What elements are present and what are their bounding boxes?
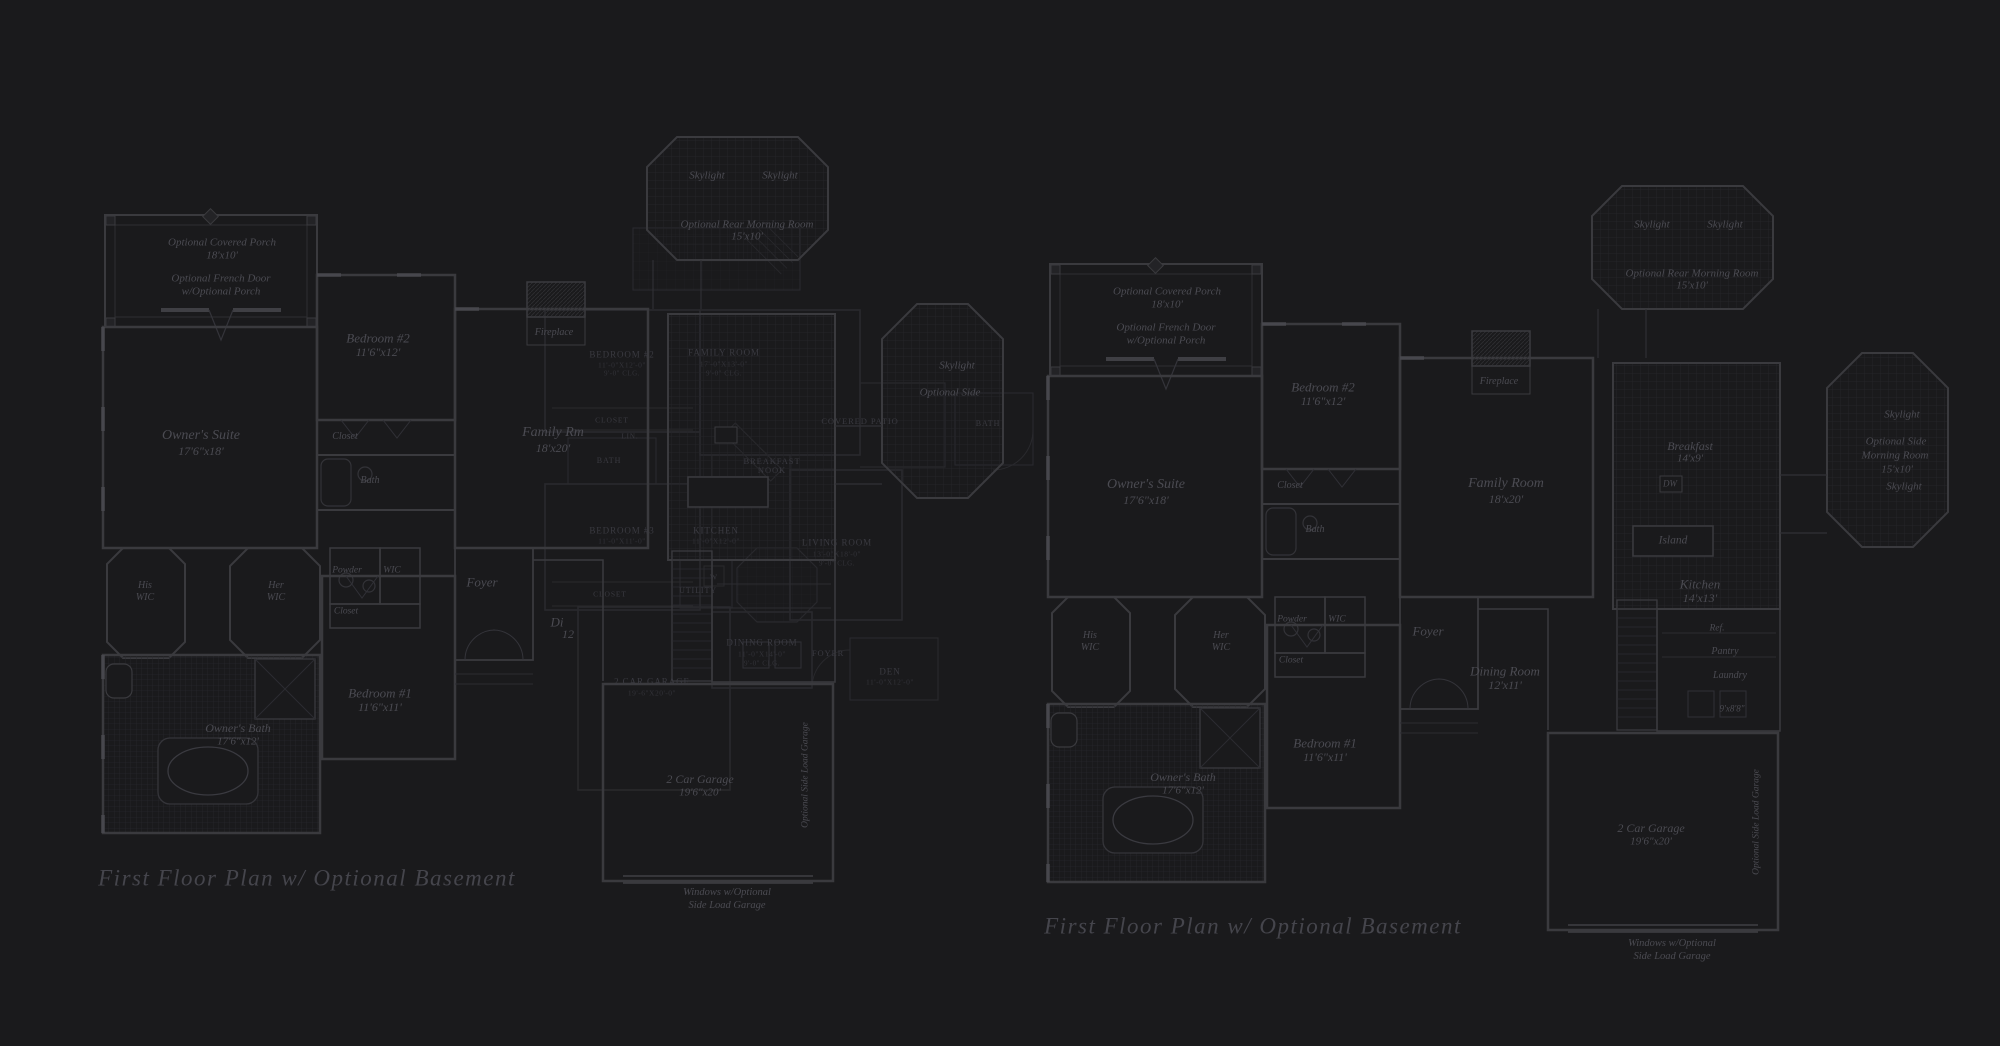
- right-owners-suite-label: Owner's Suite: [1107, 478, 1185, 492]
- left-closet-hall-label: Closet: [334, 607, 358, 617]
- right-owners-suite-dim: 17'6"x18': [1123, 494, 1169, 506]
- left-her-wic-label: Her: [268, 581, 284, 591]
- right-bedroom2-dim: 11'6"x12': [1301, 395, 1346, 407]
- overlay-closet-label: CLOSET: [595, 416, 629, 424]
- overlay-bedroom3-label: BEDROOM #3: [589, 527, 654, 536]
- overlay-garage-label: 2 CAR GARAGE: [614, 678, 690, 687]
- right-rear-morning-room-dim: 15'x10': [1676, 281, 1708, 292]
- right-her-wic-label-2: WIC: [1212, 643, 1230, 653]
- right-laundry-label: Laundry: [1713, 671, 1747, 681]
- right-skylight-b-label: Skylight: [1707, 220, 1742, 231]
- right-rear-morning-room-label: Optional Rear Morning Room: [1626, 269, 1759, 280]
- left-closet-bedroom2-label: Closet: [332, 432, 358, 442]
- overlay-bedroom3-dim: 11'-0"X11'-0": [598, 537, 646, 545]
- right-bedroom1-dim: 11'6"x11': [1303, 751, 1347, 763]
- right-side-morning-room-label-2: Morning Room: [1862, 451, 1929, 462]
- left-bedroom2-label: Bedroom #2: [346, 332, 409, 345]
- left-fireplace-label: Fireplace: [535, 328, 574, 338]
- overlay-closet2-label: CLOSET: [593, 590, 627, 598]
- right-french-door-label-2: w/Optional Porch: [1127, 336, 1206, 347]
- right-dining-dim: 12'x11': [1488, 679, 1522, 691]
- right-island-label: Island: [1659, 535, 1688, 547]
- right-closet-hall-label: Closet: [1279, 656, 1303, 666]
- overlay-dining-room-clg: 9'-0" CLG.: [744, 661, 780, 668]
- overlay-bath-label: BATH: [597, 457, 622, 465]
- overlay-washer-label: W: [710, 573, 718, 581]
- left-garage-label: 2 Car Garage: [666, 773, 733, 785]
- floor-plan-document: First Floor Plan w/ Optional Basement Fi…: [0, 0, 2000, 1046]
- overlay-den-dim: 11'-0"X12'-0": [866, 678, 914, 686]
- left-owners-bath-dim: 17'6"x12': [217, 737, 259, 748]
- left-skylight-b-label: Skylight: [762, 171, 797, 182]
- right-side-morning-room-label: Optional Side: [1866, 437, 1927, 448]
- left-owners-bath-label: Owner's Bath: [205, 722, 271, 734]
- left-french-door-label-2: w/Optional Porch: [182, 287, 261, 298]
- right-dining-label: Dining Room: [1470, 665, 1540, 678]
- left-owners-suite-dim: 17'6"x18': [178, 445, 224, 457]
- left-foyer-label: Foyer: [466, 576, 497, 589]
- right-side-morning-room-dim: 15'x10': [1881, 465, 1913, 476]
- overlay-linen-label: LIN.: [621, 434, 638, 441]
- left-dining-dim-partial: 12: [562, 628, 574, 640]
- left-rear-morning-room-dim: 15'x10': [731, 232, 763, 243]
- left-french-door-label: Optional French Door: [171, 274, 270, 285]
- right-french-door-label: Optional French Door: [1116, 323, 1215, 334]
- right-closet-bedroom2-label: Closet: [1277, 481, 1303, 491]
- left-rear-morning-room-label: Optional Rear Morning Room: [681, 220, 814, 231]
- right-side-skylight-label: Skylight: [1884, 410, 1919, 421]
- overlay-covered-patio-label: COVERED PATIO: [821, 417, 898, 426]
- overlay-utility-label: UTILITY: [679, 587, 717, 595]
- overlay-foyer-label: FOYER: [812, 649, 844, 658]
- left-bedroom1-dim: 11'6"x11': [358, 701, 402, 713]
- right-porch-dim: 18'x10': [1151, 300, 1183, 311]
- left-side-load-garage-label: Optional Side Load Garage: [801, 722, 811, 828]
- overlay-living-room-label: LIVING ROOM: [802, 539, 872, 548]
- left-side-skylight-label: Skylight: [939, 361, 974, 372]
- overlay-dining-room-label: DINING ROOM: [726, 639, 797, 648]
- left-garage-dim: 19'6"x20': [679, 788, 721, 799]
- right-garage-dim: 19'6"x20': [1630, 837, 1672, 848]
- left-wic-label: WIC: [383, 566, 400, 576]
- right-his-wic-label-2: WIC: [1081, 643, 1099, 653]
- left-windows-note-label: Windows w/Optional: [683, 888, 771, 899]
- right-dw-label: DW: [1663, 480, 1677, 489]
- overlay-garage-dim: 19'-6"X20'-0": [628, 689, 676, 697]
- overlay-bedroom2-dim: 11'-0"X12'-0": [598, 361, 646, 369]
- right-his-wic-label: His: [1083, 631, 1097, 641]
- right-breakfast-label: Breakfast: [1667, 440, 1713, 452]
- right-pantry-label: Pantry: [1711, 647, 1738, 657]
- overlay-kitchen-dim: 11'-0"X12'-0": [692, 537, 740, 545]
- left-side-morning-room-label: Optional Side: [920, 388, 981, 399]
- right-family-room-label: Family Room: [1468, 477, 1544, 491]
- right-side-skylight-b-label: Skylight: [1886, 482, 1921, 493]
- left-porch-label: Optional Covered Porch: [168, 238, 276, 249]
- overlay-bedroom2-clg: 9'-0" CLG.: [604, 371, 640, 378]
- right-family-room-dim: 18'x20': [1489, 493, 1523, 505]
- overlay-family-room-dim: 17'-0"X13'-0": [700, 360, 748, 368]
- right-owners-bath-label: Owner's Bath: [1150, 771, 1216, 783]
- right-wic-label: WIC: [1328, 615, 1345, 625]
- right-powder-label: Powder: [1277, 615, 1307, 625]
- left-her-wic-label-2: WIC: [267, 593, 285, 603]
- overlay-bedroom2-label: BEDROOM #2: [589, 351, 654, 360]
- right-owners-bath-dim: 17'6"x12': [1162, 786, 1204, 797]
- overlay-living-room-clg: 9'-0" CLG.: [819, 561, 855, 568]
- overlay-kitchen-label: KITCHEN: [693, 527, 739, 536]
- right-foyer-label: Foyer: [1412, 625, 1443, 638]
- right-fireplace-label: Fireplace: [1480, 377, 1519, 387]
- right-her-wic-label: Her: [1213, 631, 1229, 641]
- overlay-den-label: DEN: [879, 668, 900, 677]
- right-breakfast-dim: 14'x9': [1677, 454, 1703, 465]
- right-kitchen-label: Kitchen: [1680, 578, 1720, 591]
- left-his-wic-label: His: [138, 581, 152, 591]
- left-family-room-dim: 18'x20': [536, 442, 570, 454]
- right-side-load-garage-label: Optional Side Load Garage: [1752, 769, 1762, 875]
- left-plan-title: First Floor Plan w/ Optional Basement: [98, 867, 516, 890]
- right-laundry-dim: 9'x8'8": [1719, 705, 1744, 714]
- left-bedroom2-dim: 11'6"x12': [356, 346, 401, 358]
- right-windows-note-label-2: Side Load Garage: [1634, 952, 1711, 963]
- overlay-family-room-label: FAMILY ROOM: [688, 349, 760, 358]
- overlay-family-room-clg: 9'-0" CLG.: [706, 371, 742, 378]
- right-plan-title: First Floor Plan w/ Optional Basement: [1044, 915, 1462, 938]
- left-powder-label: Powder: [332, 566, 362, 576]
- right-bath-label: Bath: [1306, 525, 1325, 535]
- left-bath-label: Bath: [361, 476, 380, 486]
- right-kitchen-dim: 14'x13': [1683, 592, 1717, 604]
- left-bedroom1-label: Bedroom #1: [348, 687, 411, 700]
- overlay-living-room-dim: 13'-0"X18'-0": [813, 550, 861, 558]
- overlay-bath2-label: BATH: [976, 420, 1001, 428]
- left-family-room-label: Family Rm: [522, 426, 584, 440]
- left-porch-dim: 18'x10': [206, 251, 238, 262]
- left-skylight-a-label: Skylight: [689, 171, 724, 182]
- right-windows-note-label: Windows w/Optional: [1628, 939, 1716, 950]
- left-his-wic-label-2: WIC: [136, 593, 154, 603]
- right-porch-label: Optional Covered Porch: [1113, 287, 1221, 298]
- overlay-dining-room-dim: 11'-0"X14'-0": [738, 650, 786, 658]
- right-ref-label: Ref.: [1709, 624, 1724, 634]
- overlay-breakfast-label-2: NOOK: [758, 466, 786, 475]
- right-bedroom2-label: Bedroom #2: [1291, 381, 1354, 394]
- left-windows-note-label-2: Side Load Garage: [689, 901, 766, 912]
- right-bedroom1-label: Bedroom #1: [1293, 737, 1356, 750]
- left-owners-suite-label: Owner's Suite: [162, 429, 240, 443]
- right-skylight-a-label: Skylight: [1634, 220, 1669, 231]
- right-garage-label: 2 Car Garage: [1617, 822, 1684, 834]
